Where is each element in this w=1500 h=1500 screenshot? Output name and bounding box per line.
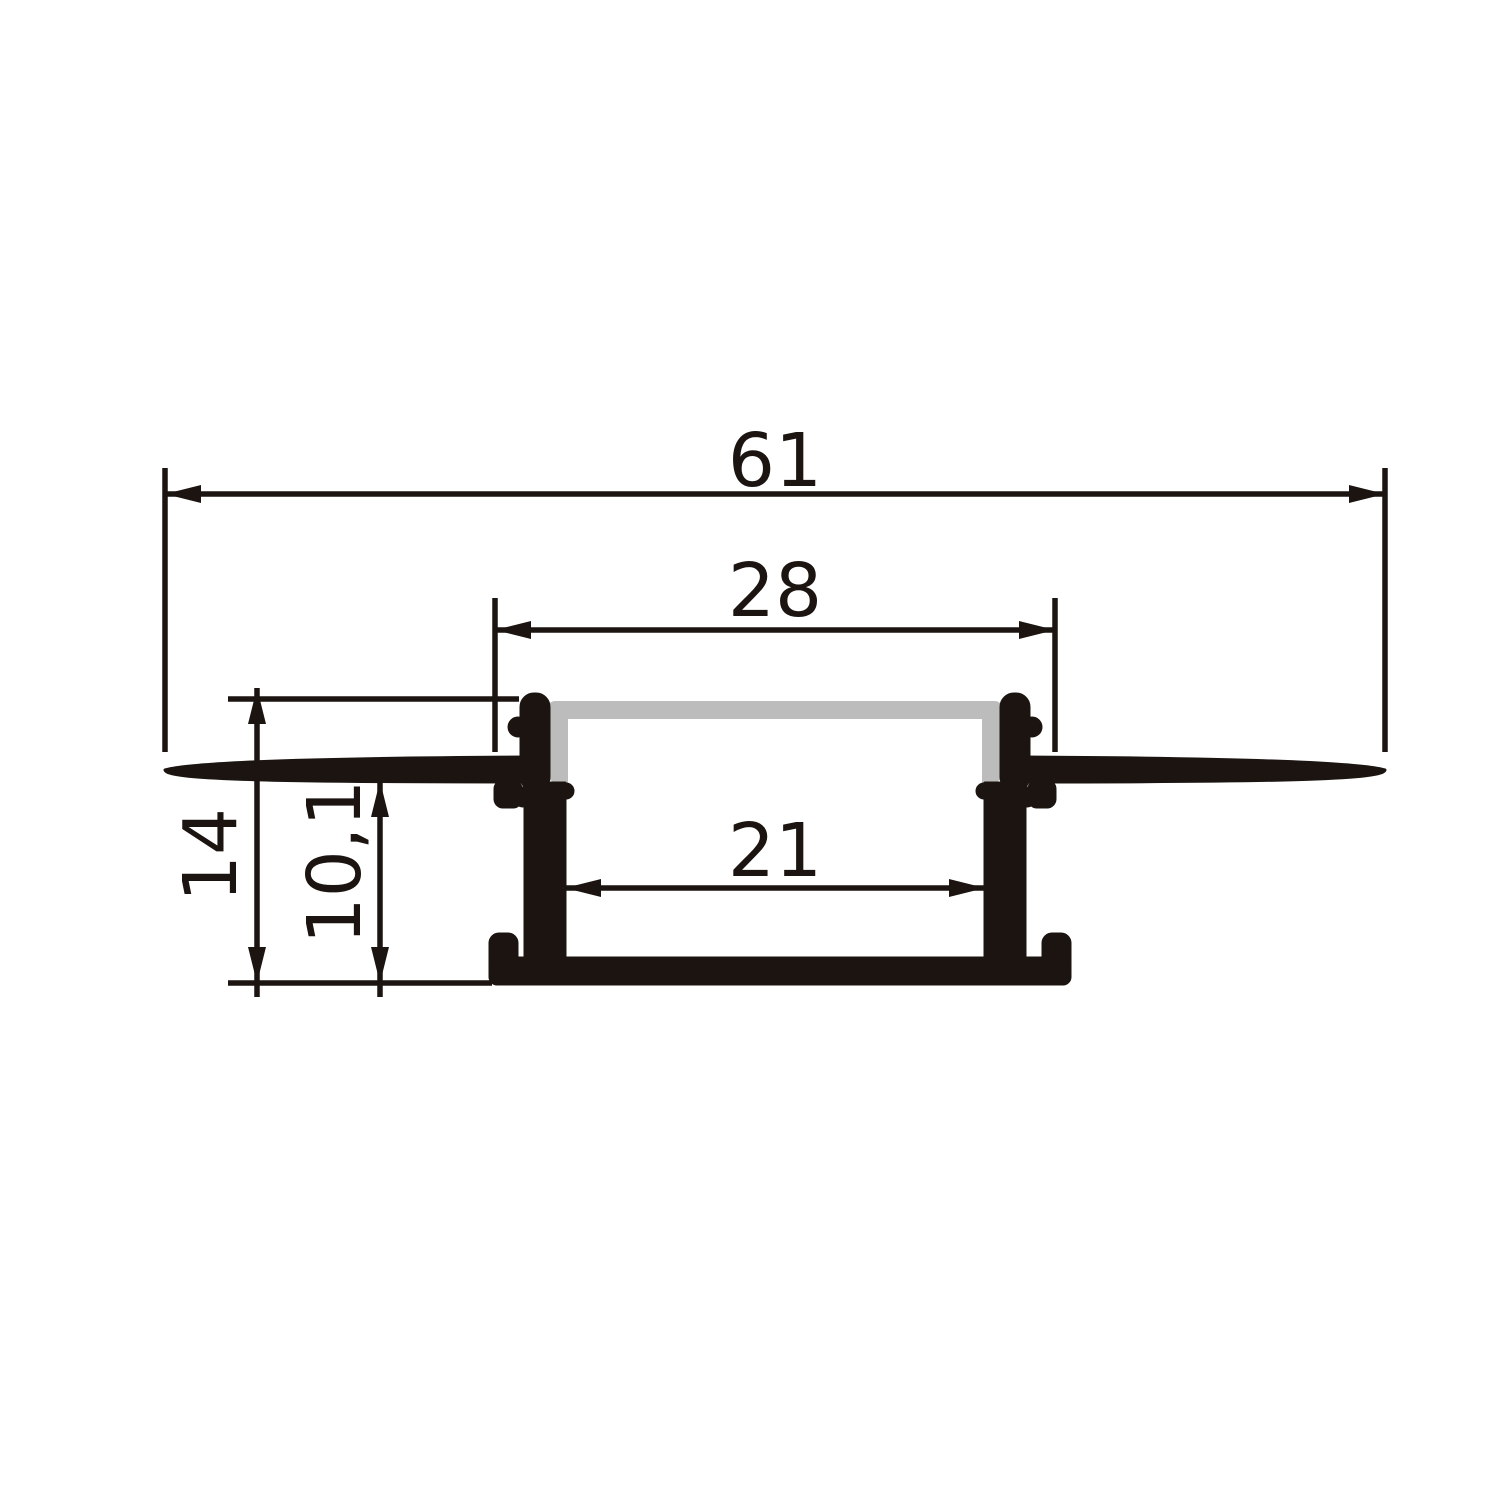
plaster-flange-right: [1020, 757, 1385, 782]
inner-bead-right: [977, 784, 991, 798]
inner-bead-left: [559, 784, 573, 798]
trim-lip-left: [521, 694, 549, 790]
arrowhead-inner-height-bottom: [371, 947, 389, 983]
base-hook-left: [490, 934, 517, 974]
diffuser-cover: [548, 701, 1002, 783]
dim-label-inner-height: 10,1: [292, 780, 378, 945]
arrowhead-overall-height-bottom: [248, 947, 266, 983]
arrowhead-inner-width-left: [565, 879, 601, 897]
dim-label-opening-width: 28: [728, 548, 822, 634]
retainer-bead-right-upper: [1023, 718, 1041, 736]
retainer-bead-left-lower: [514, 788, 532, 806]
dim-label-overall-height: 14: [168, 808, 254, 902]
dim-label-overall-width: 61: [728, 418, 822, 504]
profile-cross-section-drawing: 61 28 21 14 10,1: [0, 0, 1500, 1500]
plaster-flange-left: [165, 757, 530, 782]
drawing-canvas: 61 28 21 14 10,1: [0, 0, 1500, 1500]
arrowhead-inner-width-right: [949, 879, 985, 897]
arrowhead-overall-height-top: [248, 688, 266, 724]
channel-wall-right: [985, 783, 1025, 960]
diffuser-group: [548, 701, 1002, 783]
dim-label-inner-width: 21: [728, 808, 822, 894]
channel-wall-left: [525, 783, 565, 960]
base-hook-right: [1043, 934, 1070, 974]
trim-lip-right: [1001, 694, 1029, 790]
arrowhead-opening-width-left: [495, 621, 531, 639]
channel-base: [490, 958, 1070, 984]
retainer-bead-left-upper: [509, 718, 527, 736]
retainer-bead-right-lower: [1018, 788, 1036, 806]
arrowhead-overall-width-left: [165, 485, 201, 503]
arrowhead-overall-width-right: [1349, 485, 1385, 503]
arrowhead-opening-width-right: [1019, 621, 1055, 639]
